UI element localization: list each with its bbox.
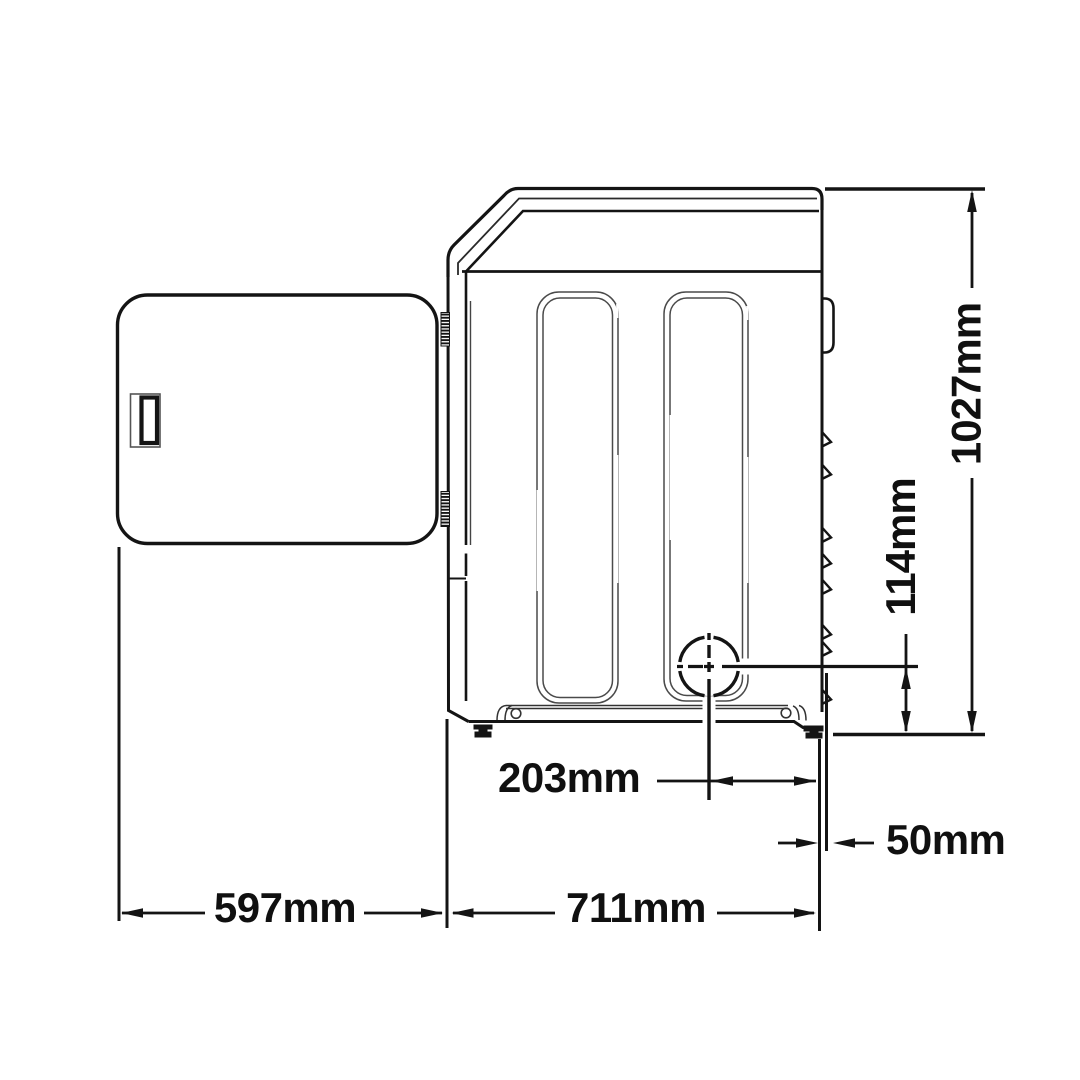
svg-text:114mm: 114mm — [877, 478, 924, 615]
svg-text:597mm: 597mm — [214, 884, 356, 931]
svg-text:50mm: 50mm — [886, 816, 1005, 863]
svg-text:203mm: 203mm — [498, 754, 640, 801]
svg-text:711mm: 711mm — [566, 884, 706, 931]
svg-text:1027mm: 1027mm — [943, 303, 990, 465]
